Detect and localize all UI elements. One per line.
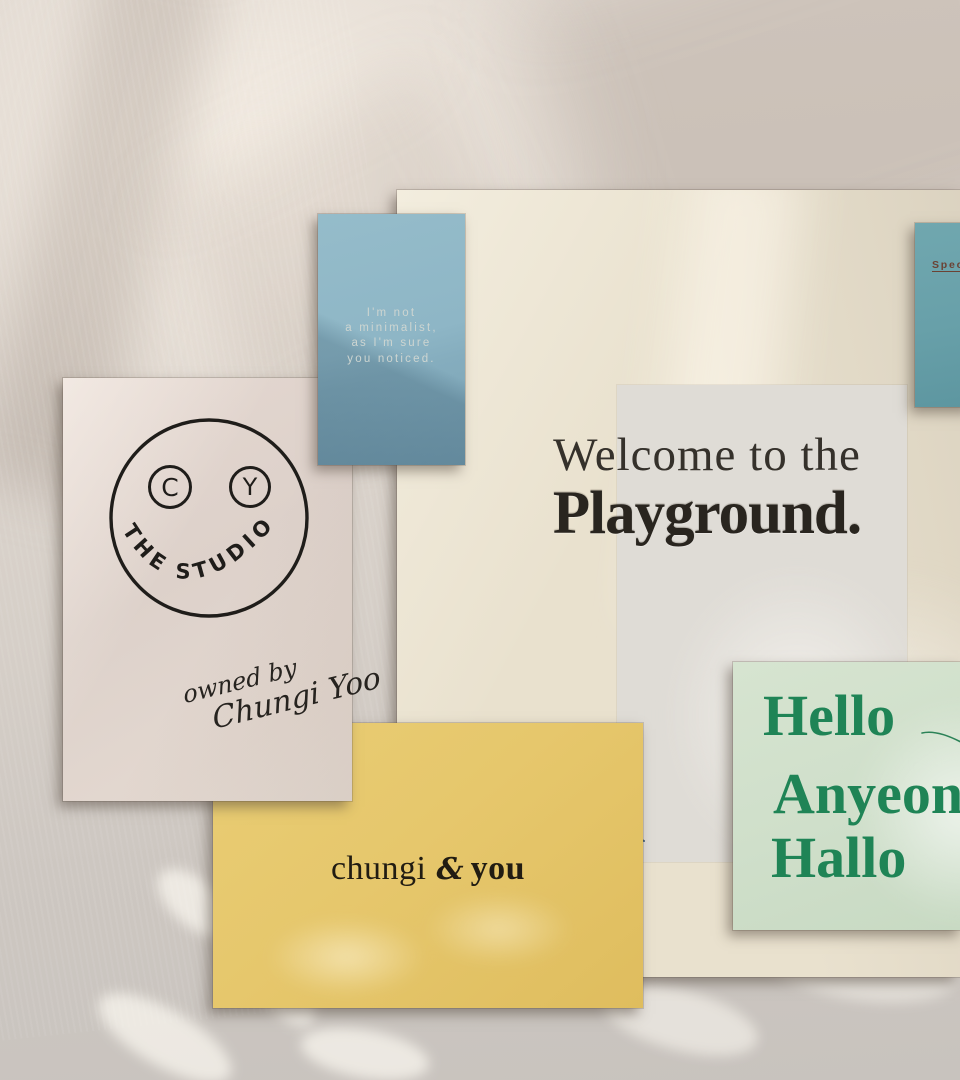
special-tag-card: Special [915,223,960,407]
minimalist-quote: I'm not a minimalist, as I'm sure you no… [318,306,465,367]
logo-eye-y: Y [242,473,258,501]
quote-line: I'm not [318,306,465,321]
logo-arc-text: THE STUDIO [118,511,280,584]
thin-green-accent-line [921,726,960,752]
logo-eye-c: C [161,473,178,502]
chungi-and-you-wordmark: chungi & you [213,841,643,897]
wordmark-you: you [471,850,525,888]
wordmark-ampersand: & [437,852,464,887]
svg-text:THE STUDIO: THE STUDIO [118,511,280,584]
special-label: Special [932,259,960,271]
quote-line: as I'm sure [318,336,465,351]
poster-heading: Welcome to the Playground. [527,428,887,546]
greeting-hallo: Hallo [771,826,906,890]
greeting-hello: Hello [763,684,895,748]
studio-logo-card: C Y THE STUDIO owned by Chungi Yoo [63,378,352,801]
greetings-card: Hello Anyeong Hallo [733,662,960,930]
poster-heading-line1: Welcome to the [527,428,887,482]
quote-line: you noticed. [318,352,465,367]
moodboard-scene: Welcome to the Playground. Special Hello… [0,0,960,1080]
quote-line: a minimalist, [318,321,465,336]
greeting-anyeong: Anyeong [773,762,960,826]
wordmark-chungi: chungi [331,850,427,888]
poster-heading-line2: Playground. [527,482,887,546]
minimalist-note-card: I'm not a minimalist, as I'm sure you no… [318,214,465,465]
